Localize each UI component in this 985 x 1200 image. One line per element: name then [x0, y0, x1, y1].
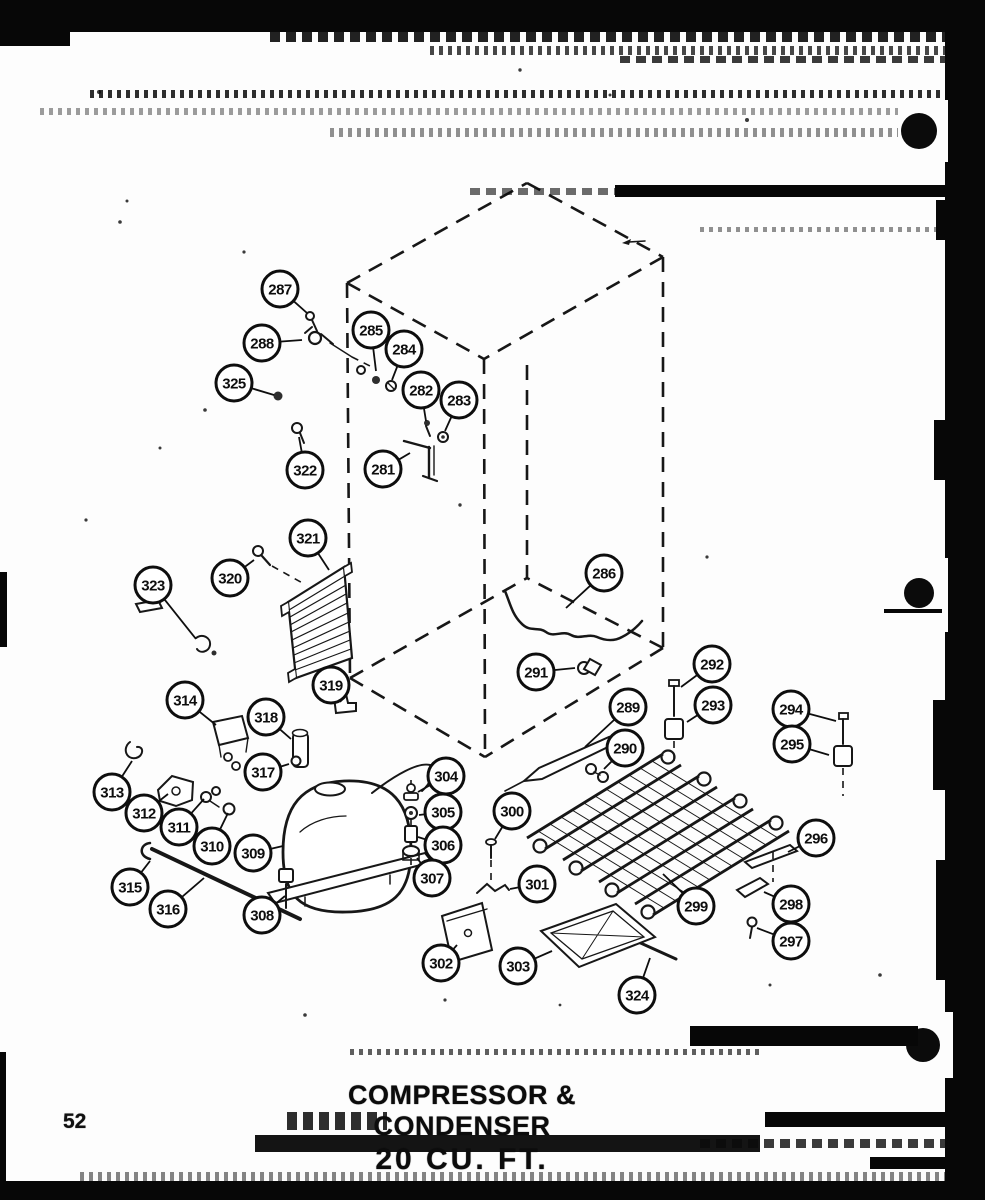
callout-288: 288: [244, 325, 302, 361]
svg-text:321: 321: [296, 531, 320, 548]
svg-text:290: 290: [613, 741, 637, 758]
svg-text:304: 304: [434, 769, 459, 786]
svg-text:283: 283: [447, 393, 471, 410]
part-drain-fitting-291: [578, 659, 601, 675]
callout-290: 290: [604, 730, 643, 769]
callout-283: 283: [441, 382, 477, 431]
callout-302: 302: [423, 945, 459, 981]
svg-text:297: 297: [779, 934, 803, 951]
callout-301: 301: [510, 866, 555, 902]
binder-hole: [906, 1028, 940, 1062]
svg-text:294: 294: [779, 702, 804, 719]
scanned-manual-page: { "page": { "number": "52", "title_line1…: [0, 0, 985, 1200]
svg-text:306: 306: [431, 838, 455, 855]
part-bracket-281: [404, 441, 437, 481]
page-background: 2812822832842852862872882892902912922932…: [0, 0, 985, 1200]
callout-324: 324: [619, 958, 655, 1013]
svg-text:291: 291: [524, 665, 548, 682]
part-relay-314: [213, 716, 248, 770]
svg-text:323: 323: [141, 578, 165, 595]
part-fitting-290: [586, 764, 608, 782]
part-screw-297: [748, 918, 757, 939]
part-clip-313: [126, 742, 142, 758]
svg-text:285: 285: [359, 323, 383, 340]
page-number: 52: [63, 1110, 86, 1134]
part-clip-301: [477, 884, 509, 893]
callout-298: 298: [764, 886, 809, 922]
callout-303: 303: [500, 948, 552, 984]
svg-text:316: 316: [156, 902, 180, 919]
callout-319: 319: [313, 667, 349, 703]
binder-hole: [904, 578, 934, 608]
svg-text:299: 299: [684, 899, 708, 916]
svg-text:313: 313: [100, 785, 124, 802]
callout-292: 292: [681, 646, 730, 687]
part-screw-292-bushing-293: [665, 680, 683, 765]
svg-text:296: 296: [804, 831, 828, 848]
svg-text:287: 287: [268, 282, 292, 299]
part-screw-294-bushing-295: [834, 713, 852, 796]
exploded-diagram: 2812822832842852862872882892902912922932…: [0, 0, 985, 1200]
callout-287: 287: [262, 271, 307, 313]
svg-text:319: 319: [319, 678, 343, 695]
svg-text:281: 281: [371, 462, 395, 479]
svg-text:289: 289: [616, 700, 640, 717]
callout-316: 316: [150, 878, 204, 927]
callout-325: 325: [216, 365, 274, 401]
callout-304: 304: [418, 758, 464, 794]
svg-text:310: 310: [200, 839, 224, 856]
callout-309: 309: [235, 835, 283, 871]
callout-305: 305: [419, 794, 461, 830]
part-drain-pan-303: [541, 904, 655, 967]
svg-text:320: 320: [218, 571, 242, 588]
part-pin-323: [136, 600, 217, 656]
part-cover-312: [158, 776, 193, 806]
callout-294: 294: [773, 691, 836, 727]
callout-307: 307: [414, 858, 450, 896]
callout-286: 286: [566, 555, 622, 608]
part-grommet-310: [224, 804, 235, 815]
svg-text:314: 314: [173, 693, 198, 710]
part-drain-tube-286: [505, 591, 642, 640]
svg-text:324: 324: [625, 988, 650, 1005]
callout-315: 315: [112, 861, 150, 905]
svg-text:312: 312: [132, 806, 156, 823]
svg-text:318: 318: [254, 710, 278, 727]
callout-321: 321: [290, 520, 329, 570]
svg-text:325: 325: [222, 376, 246, 393]
callout-313: 313: [94, 761, 132, 810]
svg-text:300: 300: [500, 804, 524, 821]
callout-295: 295: [774, 726, 829, 762]
svg-text:308: 308: [250, 908, 274, 925]
part-plate-321: [281, 563, 352, 682]
callout-308: 308: [244, 896, 285, 933]
svg-text:303: 303: [506, 959, 530, 976]
svg-text:311: 311: [168, 820, 191, 837]
svg-text:301: 301: [525, 877, 549, 894]
svg-text:322: 322: [293, 463, 317, 480]
callout-291: 291: [518, 654, 575, 690]
part-bracket-298: [737, 878, 768, 897]
svg-text:284: 284: [392, 342, 417, 359]
diagram-caption: COMPRESSOR & CONDENSER 20 CU. FT.: [262, 1080, 662, 1177]
callout-281: 281: [365, 451, 410, 487]
svg-text:309: 309: [241, 846, 265, 863]
caption-line-1: COMPRESSOR & CONDENSER: [262, 1080, 662, 1142]
part-nut-317: [292, 757, 301, 766]
svg-text:315: 315: [118, 880, 142, 897]
callout-322: 322: [287, 437, 323, 488]
part-screw-300: [486, 839, 496, 884]
svg-text:282: 282: [409, 383, 433, 400]
callout-310: 310: [194, 813, 230, 864]
binder-hole: [901, 113, 937, 149]
callout-300: 300: [494, 793, 530, 839]
svg-text:292: 292: [700, 657, 724, 674]
svg-text:305: 305: [431, 805, 455, 822]
svg-text:302: 302: [429, 956, 453, 973]
callout-293: 293: [687, 687, 731, 723]
callout-282: 282: [403, 372, 439, 421]
svg-text:317: 317: [251, 765, 275, 782]
callout-317: 317: [245, 754, 289, 790]
callout-320: 320: [212, 560, 254, 596]
svg-text:298: 298: [779, 897, 803, 914]
svg-text:295: 295: [780, 737, 804, 754]
caption-line-2: 20 CU. FT.: [262, 1143, 662, 1177]
part-plug-311: [201, 787, 220, 807]
svg-text:293: 293: [701, 698, 725, 715]
svg-text:307: 307: [420, 871, 444, 888]
svg-text:288: 288: [250, 336, 274, 353]
callout-318: 318: [248, 699, 291, 739]
svg-text:286: 286: [592, 566, 616, 583]
callout-314: 314: [167, 682, 216, 725]
callout-297: 297: [757, 923, 809, 959]
callout-285: 285: [353, 312, 389, 371]
